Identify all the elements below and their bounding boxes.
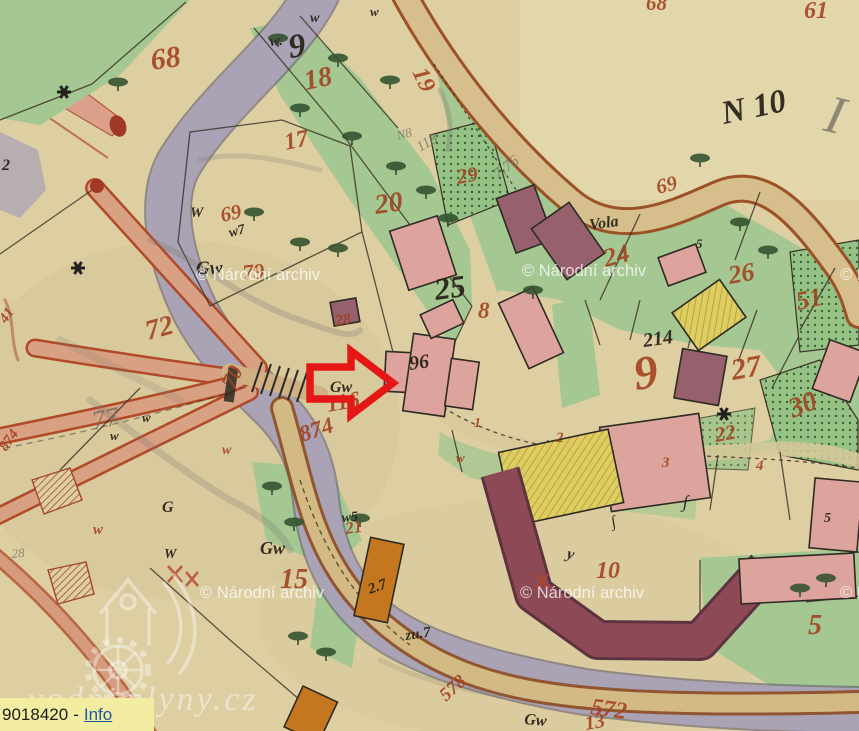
- black-map-label: w.: [269, 33, 284, 50]
- archive-watermark-partial: © Národní archiv: [840, 584, 859, 602]
- tree-icon: [244, 208, 264, 217]
- black-map-label: W: [190, 205, 205, 221]
- tree-icon: [290, 104, 310, 113]
- object-id: 9018420: [2, 705, 68, 725]
- black-map-label: w: [370, 4, 379, 19]
- cadastral-map-canvas[interactable]: 6818191729206979727011687487482892730512…: [0, 0, 859, 731]
- black-map-label: G: [162, 499, 174, 516]
- red-map-label: 61: [804, 0, 828, 24]
- red-map-label: 3: [661, 455, 670, 471]
- black-map-label: Gw: [330, 379, 353, 396]
- tree-icon: [328, 244, 348, 253]
- tree-icon: [316, 648, 336, 657]
- black-map-label: Gw: [524, 711, 548, 730]
- tree-icon: [290, 238, 310, 247]
- red-map-label: 26: [725, 257, 757, 290]
- info-link[interactable]: Info: [84, 705, 112, 725]
- archive-watermark: © Národní archiv: [520, 584, 645, 602]
- map-viewer: 6818191729206979727011687487482892730512…: [0, 0, 859, 731]
- tree-icon: [288, 632, 308, 641]
- tree-icon: [438, 214, 458, 223]
- red-map-label: 29: [454, 162, 480, 190]
- tree-icon: [328, 54, 348, 63]
- tree-icon: [816, 574, 836, 583]
- red-map-label: 68: [148, 40, 182, 77]
- tree-icon: [386, 162, 406, 171]
- black-map-label: 25: [431, 268, 468, 307]
- black-map-label: 5: [824, 511, 831, 526]
- archive-watermark: © Národní archiv: [200, 584, 325, 602]
- black-map-label: 2: [1, 157, 10, 174]
- archive-watermark: © Národní archiv: [522, 262, 647, 280]
- tree-icon: [262, 482, 282, 491]
- red-map-label: 8: [478, 298, 490, 323]
- black-map-label: w: [142, 410, 151, 425]
- red-map-label: 20: [372, 186, 405, 221]
- tree-icon: [758, 246, 778, 255]
- archive-watermark: © Národní archiv: [196, 266, 321, 284]
- red-map-label: 4: [755, 458, 764, 474]
- black-map-label: w5: [341, 510, 359, 526]
- red-map-label: 22: [712, 420, 738, 448]
- red-map-label: 1: [474, 416, 481, 431]
- tree-icon: [108, 78, 128, 87]
- red-map-label: 28: [333, 310, 353, 330]
- tree-icon: [790, 584, 810, 593]
- tree-icon: [416, 186, 436, 195]
- red-map-label: 2: [555, 430, 564, 446]
- tree-icon: [690, 154, 710, 163]
- red-map-label: w: [222, 443, 232, 458]
- tree-icon: [380, 76, 400, 85]
- object-id-tooltip: 9018420 - Info: [0, 698, 154, 731]
- tree-icon: [284, 518, 304, 527]
- tree-icon: [342, 132, 362, 141]
- red-map-label: 68: [646, 0, 668, 15]
- black-map-label: 96: [408, 350, 431, 375]
- pencil-map-label: 28: [11, 545, 26, 561]
- red-map-label: 13: [583, 710, 607, 731]
- black-map-label: 214: [641, 326, 675, 352]
- tree-icon: [730, 218, 750, 227]
- archive-watermark-partial: © Národní archiv: [840, 266, 859, 284]
- black-map-label: 5: [696, 236, 703, 251]
- red-map-label: 5: [808, 610, 822, 641]
- tooltip-separator: -: [73, 705, 79, 725]
- black-map-label: W: [164, 547, 178, 562]
- tree-icon: [523, 286, 543, 295]
- black-map-label: w: [310, 11, 320, 26]
- red-map-label: 10: [596, 558, 620, 584]
- black-map-label: Gw: [260, 538, 286, 558]
- red-map-label: w: [456, 450, 465, 465]
- red-map-label: w: [93, 522, 104, 538]
